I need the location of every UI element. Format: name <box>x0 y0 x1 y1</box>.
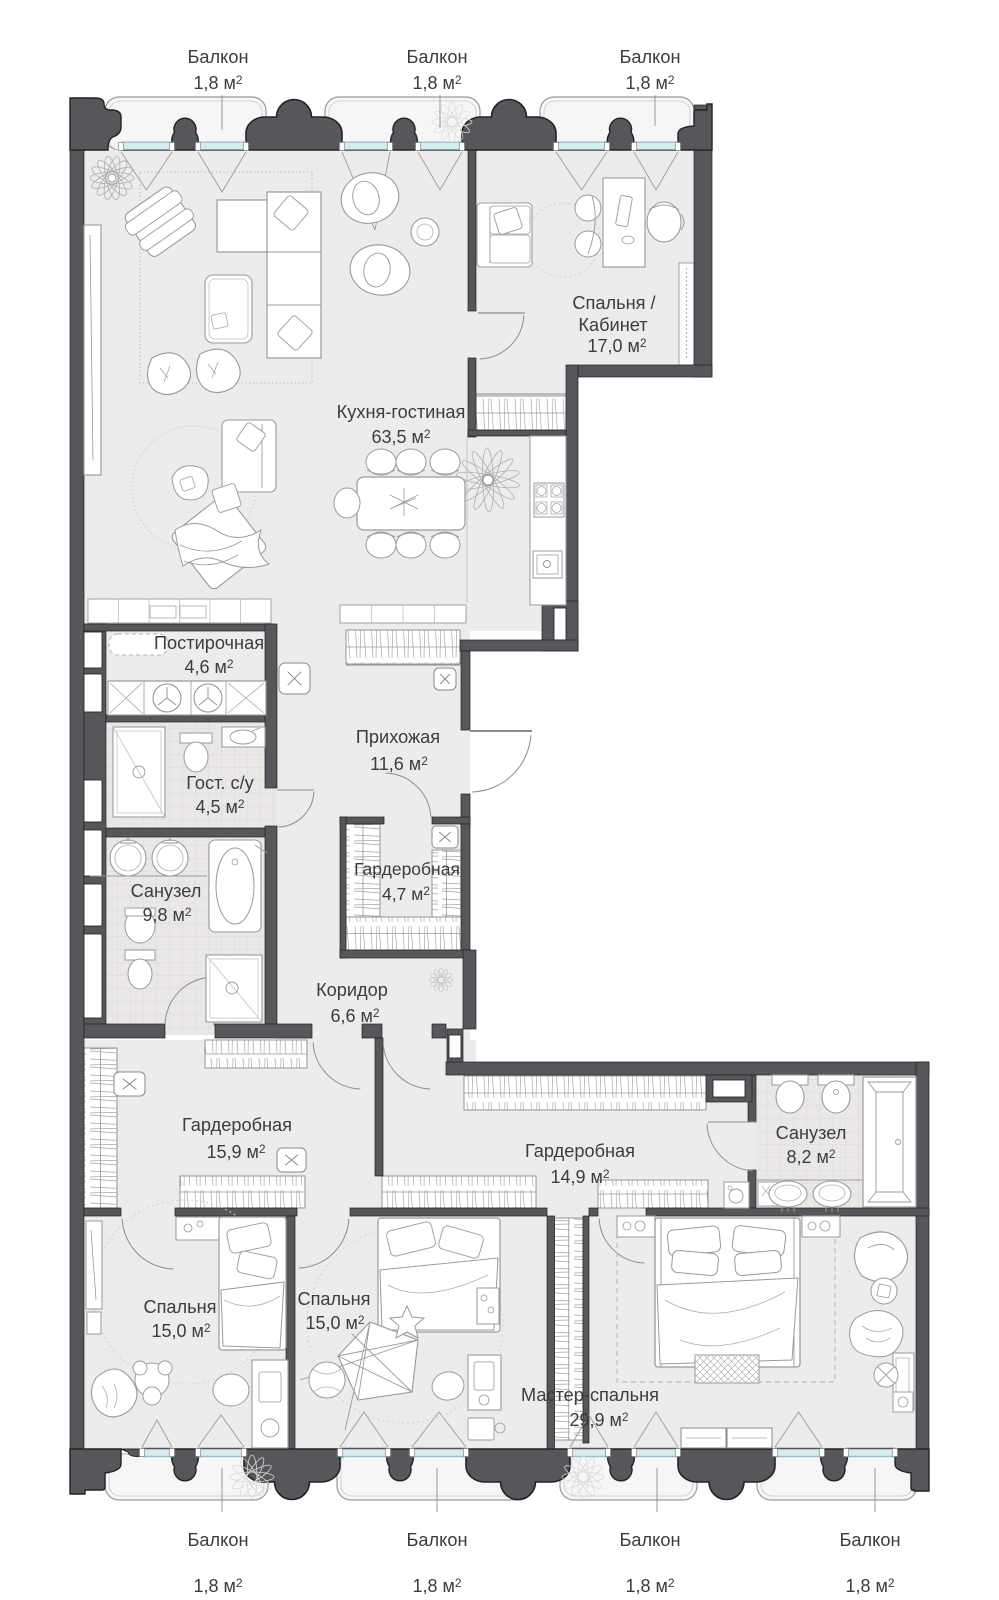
svg-text:Санузел: Санузел <box>776 1123 847 1143</box>
svg-text:1,8 м2: 1,8 м2 <box>412 1576 461 1596</box>
svg-text:Балкон: Балкон <box>620 47 681 67</box>
svg-text:Балкон: Балкон <box>407 47 468 67</box>
svg-text:Кухня-гостиная: Кухня-гостиная <box>337 402 466 422</box>
svg-text:17,0 м2: 17,0 м2 <box>587 336 646 356</box>
svg-text:9,8 м2: 9,8 м2 <box>142 905 191 925</box>
svg-text:4,7 м2: 4,7 м2 <box>382 884 430 904</box>
svg-text:Балкон: Балкон <box>620 1530 681 1550</box>
svg-text:11,6 м2: 11,6 м2 <box>370 754 428 774</box>
svg-text:6,6 м2: 6,6 м2 <box>330 1006 379 1026</box>
svg-text:Спальня: Спальня <box>143 1297 216 1317</box>
svg-text:14,9 м2: 14,9 м2 <box>550 1167 609 1187</box>
svg-text:Кабинет: Кабинет <box>578 315 648 335</box>
svg-text:29,9 м2: 29,9 м2 <box>569 1410 628 1430</box>
svg-text:1,8 м2: 1,8 м2 <box>625 73 674 93</box>
svg-text:Постирочная: Постирочная <box>154 633 264 653</box>
svg-text:4,5 м2: 4,5 м2 <box>195 797 244 817</box>
svg-text:4,6 м2: 4,6 м2 <box>184 657 233 677</box>
svg-text:Прихожая: Прихожая <box>356 727 440 747</box>
svg-text:8,2 м2: 8,2 м2 <box>786 1147 835 1167</box>
svg-text:Коридор: Коридор <box>316 980 388 1000</box>
svg-text:Гардеробная: Гардеробная <box>354 859 460 879</box>
svg-text:1,8 м2: 1,8 м2 <box>193 1576 242 1596</box>
svg-text:Балкон: Балкон <box>188 1530 249 1550</box>
svg-text:Санузел: Санузел <box>131 881 202 901</box>
svg-text:1,8 м2: 1,8 м2 <box>625 1576 674 1596</box>
svg-text:1,8 м2: 1,8 м2 <box>193 73 242 93</box>
svg-text:Балкон: Балкон <box>407 1530 468 1550</box>
svg-text:Гардеробная: Гардеробная <box>182 1115 292 1135</box>
svg-text:Мастер-спальня: Мастер-спальня <box>521 1385 659 1405</box>
svg-text:Спальня /: Спальня / <box>572 293 656 313</box>
svg-text:1,8 м2: 1,8 м2 <box>845 1576 894 1596</box>
svg-text:Балкон: Балкон <box>188 47 249 67</box>
svg-text:15,0 м2: 15,0 м2 <box>305 1313 364 1333</box>
svg-text:63,5 м2: 63,5 м2 <box>371 427 430 447</box>
svg-text:1,8 м2: 1,8 м2 <box>412 73 461 93</box>
svg-text:Балкон: Балкон <box>840 1530 901 1550</box>
svg-text:15,9 м2: 15,9 м2 <box>206 1142 265 1162</box>
svg-text:15,0 м2: 15,0 м2 <box>151 1321 210 1341</box>
svg-text:Спальня: Спальня <box>297 1289 370 1309</box>
svg-text:Гардеробная: Гардеробная <box>525 1141 635 1161</box>
svg-text:Гост. с/у: Гост. с/у <box>186 773 254 793</box>
